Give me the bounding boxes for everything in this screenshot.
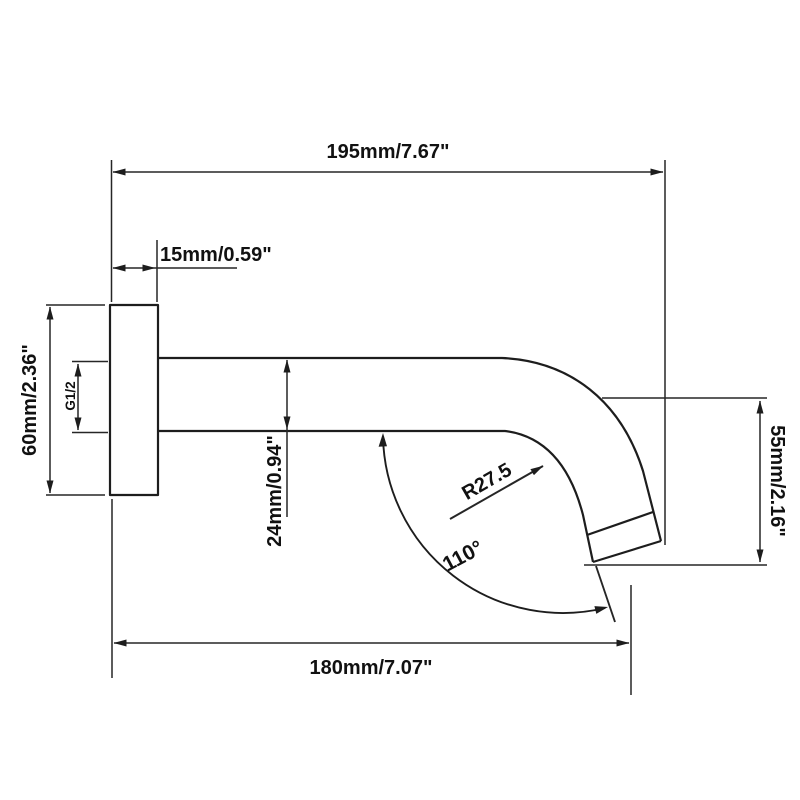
dim-overall-length-label: 195mm/7.67" bbox=[327, 141, 450, 163]
angle-arc-arrow-end bbox=[594, 606, 608, 614]
angle-extension-line bbox=[596, 566, 615, 622]
dim-flange-diameter: 60mm/2.36" bbox=[19, 305, 105, 495]
pipe-bottom-edge bbox=[158, 431, 593, 562]
drawing-canvas: 195mm/7.67" 15mm/0.59" 60mm/2.36" G1/2 bbox=[0, 0, 800, 800]
dim-pipe-diameter-label: 24mm/0.94" bbox=[264, 435, 286, 547]
dim-flange-diameter-label: 60mm/2.36" bbox=[19, 344, 41, 456]
dim-bend-radius: R27.5 bbox=[450, 459, 543, 519]
angle-arc-arrow-start bbox=[379, 433, 387, 447]
wall-flange bbox=[110, 305, 158, 495]
faucet-outline bbox=[110, 305, 661, 562]
dim-overall-length: 195mm/7.67" bbox=[112, 141, 666, 545]
dim-thread-label: G1/2 bbox=[63, 381, 78, 410]
dim-horizontal-reach: 180mm/7.07" bbox=[112, 499, 631, 695]
technical-drawing: 195mm/7.67" 15mm/0.59" 60mm/2.36" G1/2 bbox=[0, 0, 800, 800]
pipe-top-edge bbox=[158, 358, 661, 541]
dim-spout-drop: 55mm/2.16" bbox=[584, 398, 788, 565]
angle-arc bbox=[383, 437, 605, 613]
spout-end-seam bbox=[587, 512, 653, 535]
dim-pipe-diameter: 24mm/0.94" bbox=[264, 360, 287, 547]
dim-spout-angle-label: 110° bbox=[439, 536, 487, 576]
dim-horizontal-reach-label: 180mm/7.07" bbox=[310, 657, 433, 679]
dim-spout-angle: 110° bbox=[379, 433, 615, 622]
dim-flange-depth-label: 15mm/0.59" bbox=[160, 244, 272, 266]
dim-flange-depth: 15mm/0.59" bbox=[113, 240, 272, 302]
dim-spout-drop-label: 55mm/2.16" bbox=[766, 425, 788, 537]
dim-thread: G1/2 bbox=[63, 362, 108, 433]
spout-end-face bbox=[593, 541, 661, 562]
